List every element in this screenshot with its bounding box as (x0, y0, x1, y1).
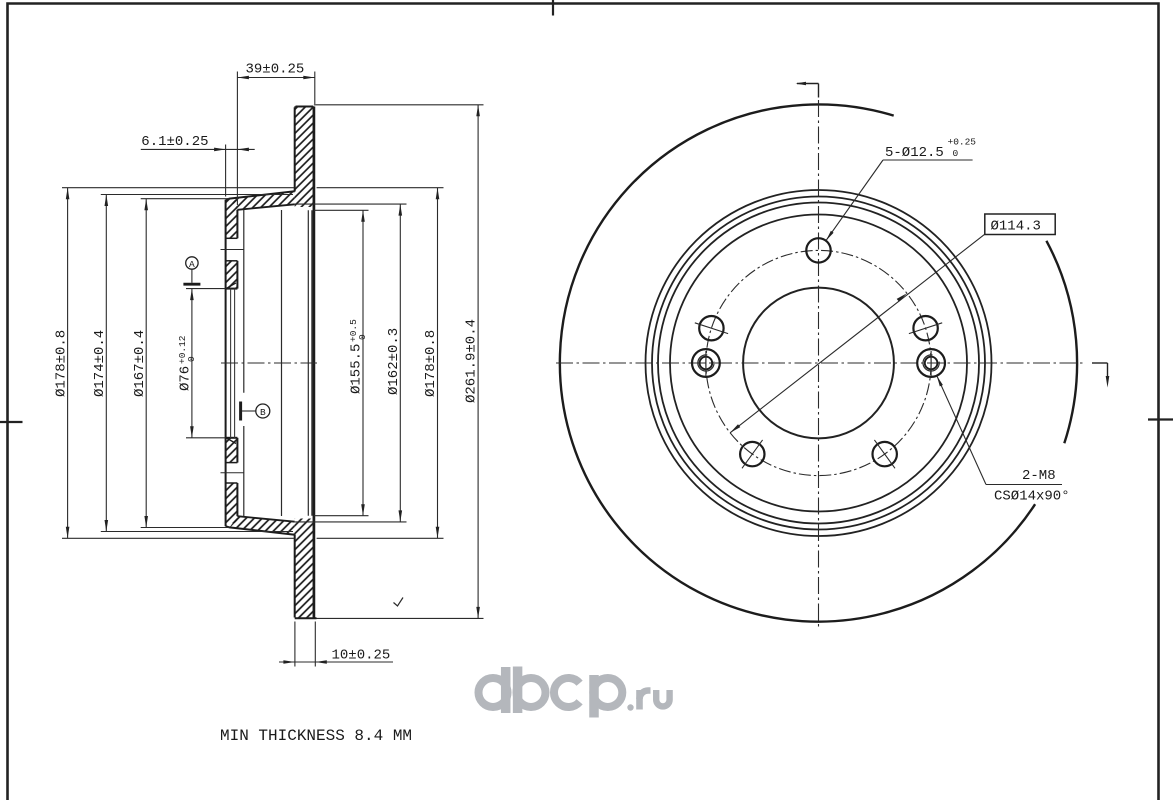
svg-text:Ø167±0.4: Ø167±0.4 (132, 330, 148, 397)
svg-text:Ø261.9±0.4: Ø261.9±0.4 (464, 319, 480, 403)
svg-text:+0.25: +0.25 (948, 136, 977, 147)
svg-text:B: B (260, 407, 266, 418)
svg-text:MIN THICKNESS 8.4 MM: MIN THICKNESS 8.4 MM (220, 727, 412, 745)
svg-text:6.1±0.25: 6.1±0.25 (141, 134, 208, 150)
svg-text:39±0.25: 39±0.25 (246, 62, 305, 78)
svg-text:0: 0 (186, 356, 197, 362)
svg-text:0: 0 (953, 148, 959, 159)
svg-text:Ø178±0.8: Ø178±0.8 (423, 330, 439, 397)
svg-text:10±0.25: 10±0.25 (332, 648, 391, 664)
svg-text:0: 0 (357, 334, 368, 340)
svg-text:Ø178±0.8: Ø178±0.8 (53, 330, 69, 397)
svg-text:Ø155.5: Ø155.5 (349, 344, 365, 394)
svg-text:Ø76: Ø76 (178, 366, 194, 391)
svg-text:CSØ14x90°: CSØ14x90° (994, 489, 1070, 505)
svg-text:5-Ø12.5: 5-Ø12.5 (885, 145, 944, 161)
svg-text:A: A (189, 259, 195, 270)
svg-text:Ø162±0.3: Ø162±0.3 (386, 328, 402, 395)
svg-text:Ø174±0.4: Ø174±0.4 (92, 330, 108, 397)
svg-text:Ø114.3: Ø114.3 (991, 219, 1041, 235)
svg-text:2-M8: 2-M8 (1022, 468, 1056, 484)
